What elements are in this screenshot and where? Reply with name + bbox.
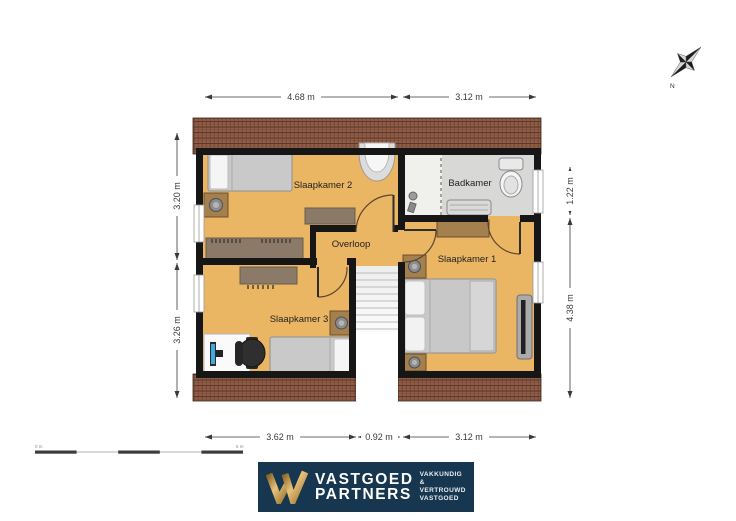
dim-top-left: 4.68 m (287, 92, 315, 102)
dim-bottom-middle: 0.92 m (365, 432, 393, 442)
nightstand-slaapkamer1-top (403, 255, 426, 278)
floor-plan-image: Slaapkamer 2 Badkamer Overloop Slaapkame… (0, 0, 736, 521)
wardrobe-slaapkamer2 (206, 238, 303, 260)
scale-bar: 0 m 5 m (35, 444, 244, 454)
bathroom-radiator (447, 200, 491, 215)
window-left-slaapkamer2 (194, 205, 204, 242)
dresser-slaapkamer1 (437, 220, 489, 237)
nightstand-slaapkamer1-bottom (403, 354, 426, 371)
dim-bottom-right: 3.12 m (455, 432, 483, 442)
brand-logo: VASTGOED PARTNERS VAKKUNDIG & VERTROUWD … (258, 462, 474, 512)
floor-plan-page: Slaapkamer 2 Badkamer Overloop Slaapkame… (0, 0, 736, 521)
bed-single-slaapkamer3 (270, 337, 352, 374)
dresser-slaapkamer2 (305, 208, 355, 224)
toilet-icon (499, 158, 523, 197)
office-chair-icon (235, 337, 265, 369)
brand-name: VASTGOED PARTNERS (315, 472, 414, 502)
window-left-slaapkamer3 (194, 275, 204, 312)
tagline-line-2: VERTROUWD (420, 487, 466, 495)
scale-start-label: 0 m (35, 444, 43, 449)
tagline-line-3: VASTGOED (420, 495, 466, 503)
window-right-slaapkamer1 (533, 262, 543, 303)
room-label-slaapkamer3: Slaapkamer 3 (270, 314, 329, 325)
bed-double-slaapkamer1 (403, 279, 496, 353)
dim-left-top: 3.20 m (172, 182, 182, 210)
dim-right-top: 1.22 m (565, 177, 575, 205)
staircase (356, 266, 398, 401)
nightstand-slaapkamer2 (204, 193, 228, 217)
room-label-overloop: Overloop (332, 239, 371, 250)
dim-right-bottom: 4.38 m (565, 294, 575, 322)
room-label-slaapkamer2: Slaapkamer 2 (294, 180, 353, 191)
brand-logo-icon (266, 470, 308, 504)
dim-top-right: 3.12 m (455, 92, 483, 102)
dim-left-bottom: 3.26 m (172, 316, 182, 344)
bed-single-slaapkamer2 (208, 153, 292, 191)
radiator-slaapkamer1 (517, 295, 532, 359)
compass-north-label: N (670, 83, 675, 90)
brand-word-1: VASTGOED (315, 472, 414, 487)
room-label-slaapkamer1: Slaapkamer 1 (438, 254, 497, 265)
window-right-badkamer (533, 170, 543, 213)
tagline-line-1: VAKKUNDIG & (420, 471, 466, 487)
scale-end-label: 5 m (236, 444, 244, 449)
compass-icon: N (663, 39, 710, 90)
brand-tagline: VAKKUNDIG & VERTROUWD VASTGOED (420, 471, 466, 502)
room-label-badkamer: Badkamer (448, 178, 491, 189)
brand-word-2: PARTNERS (315, 487, 414, 502)
dim-bottom-left: 3.62 m (266, 432, 294, 442)
